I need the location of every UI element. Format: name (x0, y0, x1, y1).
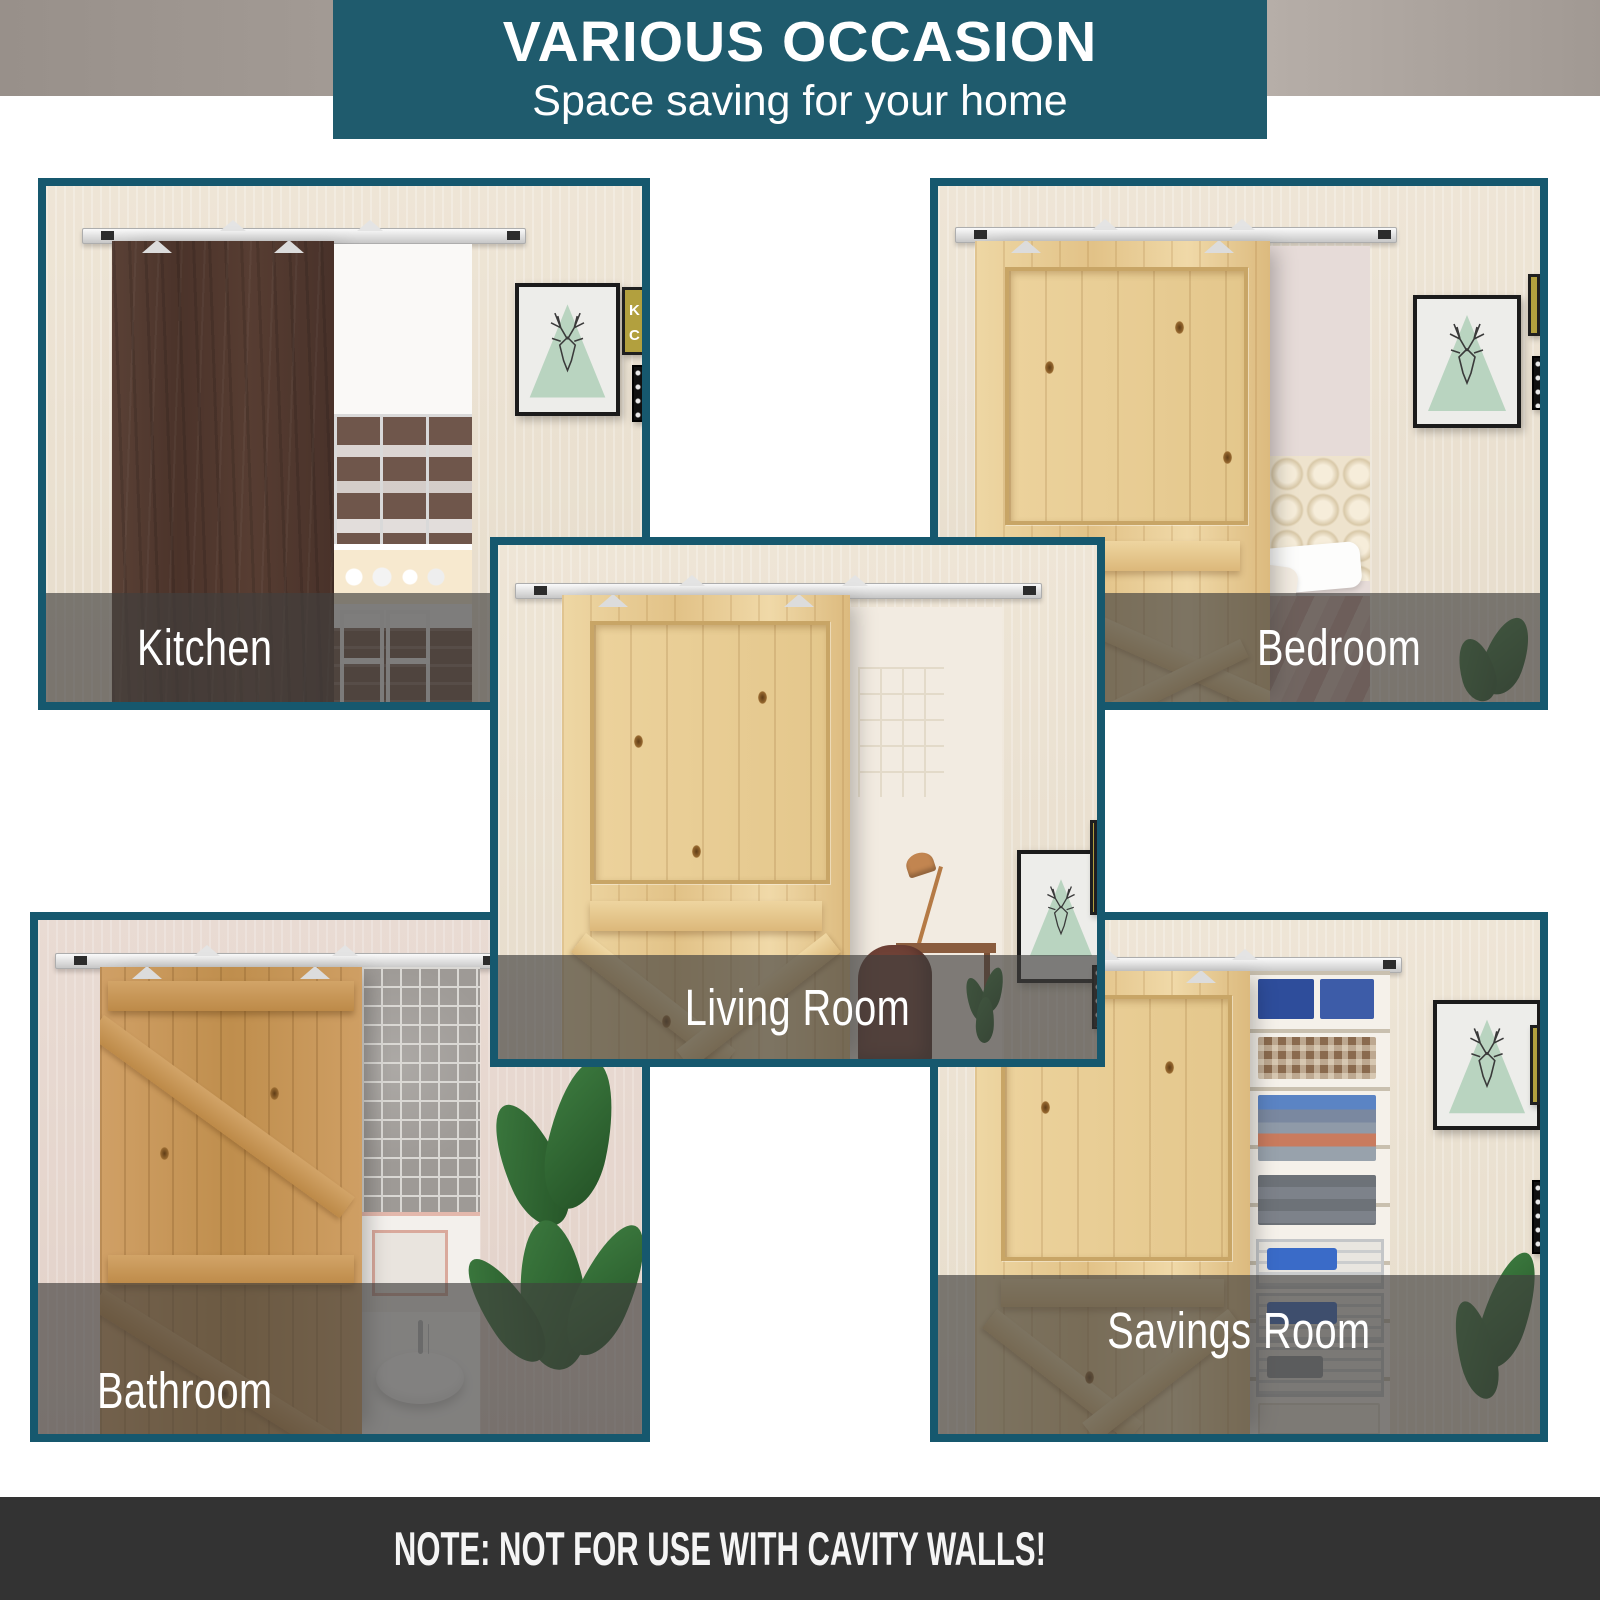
wall-poster-black (1532, 1180, 1540, 1254)
panel-label-kitchen: Kitchen (137, 618, 272, 677)
panel-label-living-room: Living Room (685, 978, 910, 1037)
desk-lamp-head (903, 849, 936, 879)
deer-artwork (1413, 295, 1521, 428)
panel-label-bedroom: Bedroom (1257, 618, 1421, 677)
wall-poster-black (632, 365, 642, 422)
wall-poster-yellow (1528, 274, 1540, 336)
storage-box (1320, 979, 1374, 1019)
label-bar: Living Room (498, 955, 1097, 1059)
poster-letter: C (629, 327, 640, 344)
wall-poster-black (1532, 356, 1540, 410)
page-subtitle: Space saving for your home (532, 77, 1067, 126)
note-banner: NOTE: NOT FOR USE WITH CAVITY WALLS! (0, 1497, 1600, 1600)
folded-blanket (1258, 1037, 1376, 1079)
label-bar: Bathroom (38, 1283, 642, 1434)
top-right-background-strip (1266, 0, 1600, 96)
mosaic-tile-wall (362, 967, 480, 1212)
desk-lamp (917, 866, 943, 944)
poster-letter: CA (629, 352, 642, 355)
header-banner: VARIOUS OCCASION Space saving for your h… (333, 0, 1267, 139)
panel-living-room: Living Room (490, 537, 1105, 1067)
storage-box (1258, 979, 1314, 1019)
kitchen-glass-cabinet (334, 414, 472, 547)
wall-poster-yellow (1530, 1025, 1540, 1105)
product-infographic: VARIOUS OCCASION Space saving for your h… (0, 0, 1600, 1600)
page-title: VARIOUS OCCASION (503, 13, 1098, 73)
panel-label-savings-room: Savings Room (1107, 1301, 1370, 1360)
deer-artwork (515, 283, 620, 416)
wall-poster-yellow: K C CA (622, 287, 642, 355)
deer-artwork (1433, 1000, 1540, 1130)
label-bar: Savings Room (938, 1275, 1540, 1434)
note-text: NOTE: NOT FOR USE WITH CAVITY WALLS! (394, 1521, 1046, 1576)
poster-letter: K (629, 302, 640, 319)
panel-label-bathroom: Bathroom (97, 1361, 273, 1420)
wall-grid-organizer (858, 667, 944, 797)
top-left-background-strip (0, 0, 334, 96)
folded-clothes (1258, 1095, 1376, 1161)
wall-poster-yellow (1090, 820, 1097, 915)
folded-clothes (1258, 1175, 1376, 1225)
living-room-photo: Living Room (498, 545, 1097, 1059)
